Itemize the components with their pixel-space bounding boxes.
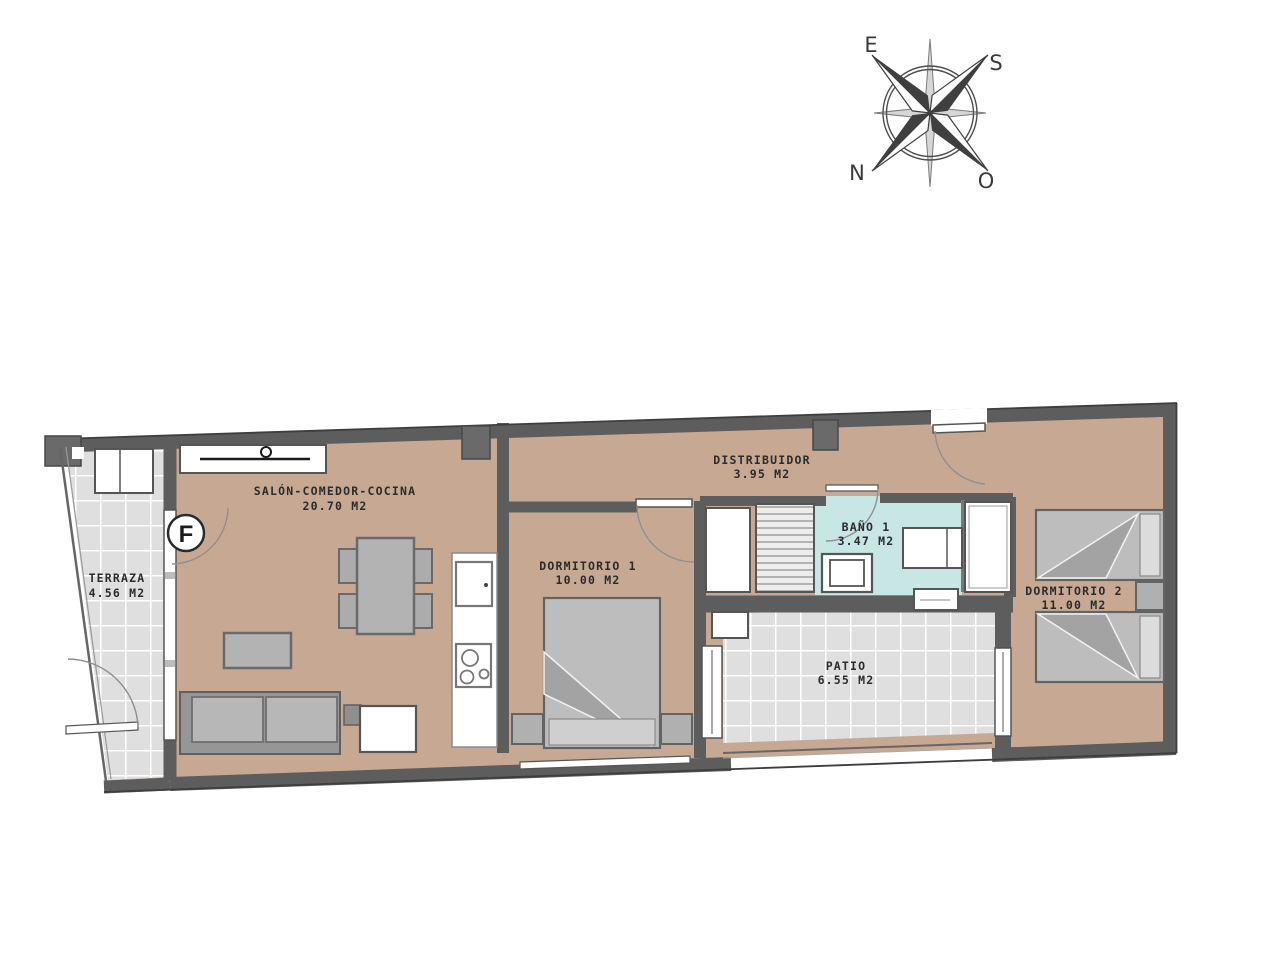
- compass-rose: E S N O: [849, 33, 1003, 193]
- bed-dorm2-top-pillow: [1140, 514, 1160, 576]
- bed-dorm1-pillow: [549, 719, 655, 745]
- sink-faucet: [484, 583, 488, 587]
- label-terraza-name: TERRAZA: [89, 571, 146, 585]
- patio-unit-left: [712, 612, 748, 638]
- chair: [339, 594, 357, 628]
- pillar-notch: [72, 447, 84, 459]
- label-salon-name: SALÓN-COMEDOR-COCINA: [254, 483, 416, 498]
- coffee-table: [224, 633, 291, 668]
- label-terraza-area: 4.56 M2: [89, 586, 146, 600]
- nightstand: [661, 714, 692, 744]
- dorm1-door-leaf: [636, 499, 692, 507]
- appliance: [360, 706, 416, 752]
- sofa-cushion: [192, 697, 263, 742]
- label-distribuidor-name: DISTRIBUIDOR: [713, 453, 810, 467]
- floor-plan-page: E S N O: [0, 0, 1280, 960]
- chair: [414, 594, 432, 628]
- label-distribuidor-area: 3.95 M2: [734, 467, 791, 481]
- washbasin: [903, 528, 962, 568]
- compass-center: [927, 110, 933, 116]
- label-dorm2-area: 11.00 M2: [1042, 598, 1107, 612]
- bath-door-leaf: [826, 485, 878, 491]
- nightstand: [1136, 582, 1164, 610]
- shower: [965, 502, 1011, 592]
- wardrobe-sliding: [756, 504, 814, 592]
- floor-plan-drawing: E S N O: [0, 0, 1280, 960]
- entrance-door-leaf: [933, 423, 985, 433]
- pillar-mid: [462, 426, 490, 459]
- bed-dorm2-bottom-pillow: [1140, 616, 1160, 678]
- chair: [339, 549, 357, 583]
- kitchen-cabinet: [344, 705, 361, 725]
- compass-label-e: E: [864, 33, 877, 57]
- label-dorm1-name: DORMITORIO 1: [539, 559, 636, 573]
- label-salon-area: 20.70 M2: [303, 499, 368, 513]
- compass-label-n: N: [849, 161, 865, 185]
- dining-table: [357, 538, 414, 634]
- tv-mount: [261, 447, 271, 457]
- pillar-distribuidor: [813, 420, 838, 450]
- label-dorm1-area: 10.00 M2: [556, 573, 621, 587]
- compass-label-o: O: [978, 169, 995, 193]
- label-dorm2-name: DORMITORIO 2: [1025, 584, 1122, 598]
- wardrobe-open: [706, 508, 750, 592]
- unit-letter: F: [179, 521, 194, 548]
- terraza-storage: [95, 449, 153, 493]
- label-bano-area: 3.47 M2: [838, 534, 895, 548]
- sofa-cushion: [266, 697, 337, 742]
- nightstand: [512, 714, 543, 744]
- label-patio-area: 6.55 M2: [818, 673, 875, 687]
- label-bano-name: BAÑO 1: [842, 519, 891, 534]
- compass-label-s: S: [989, 51, 1002, 75]
- window-mullion: [165, 572, 175, 579]
- wall-bottom-terraza: [104, 784, 170, 787]
- chair: [414, 549, 432, 583]
- label-patio-name: PATIO: [826, 659, 867, 673]
- window-mullion: [165, 660, 175, 667]
- toilet-bowl: [830, 560, 864, 586]
